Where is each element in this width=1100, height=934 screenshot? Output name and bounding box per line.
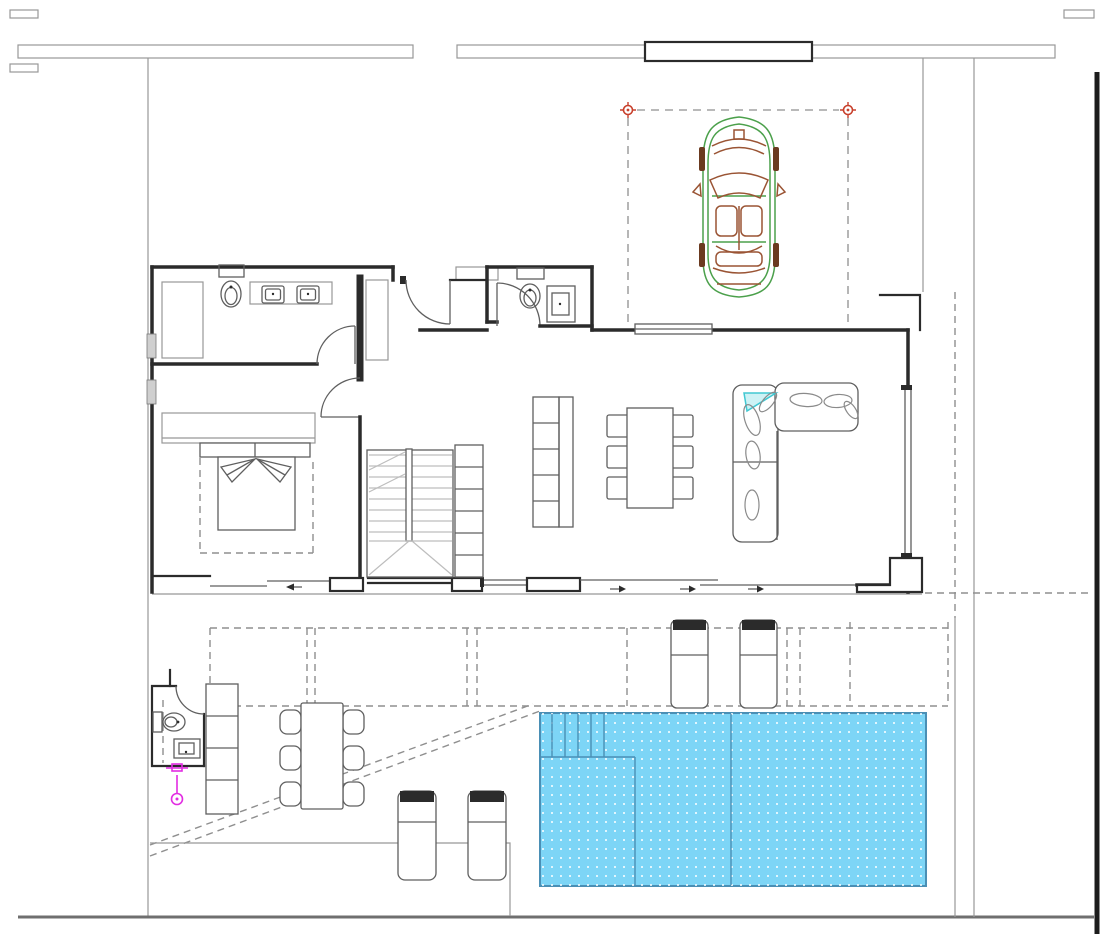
wall-ne-spur (880, 295, 920, 330)
survey-marker-icon (620, 102, 636, 118)
entry-porch-slab (456, 267, 498, 280)
sun-lounger (671, 620, 708, 708)
shelf-dividers (455, 467, 483, 555)
wall-pier-a (330, 578, 363, 591)
sofa-arm-horizontal (775, 383, 858, 431)
terrace-slab (150, 843, 510, 916)
survey-marker-icon (840, 102, 856, 118)
shower-enclosure (162, 282, 203, 358)
entrance-gate (645, 42, 812, 61)
bedroom-door-swing (321, 378, 360, 417)
dining-chair (607, 477, 629, 499)
lounger-headrest (673, 620, 706, 630)
dining-chair (671, 477, 693, 499)
shelf-dividers (533, 423, 559, 501)
window-west-2 (147, 380, 156, 404)
outdoor-chair (343, 710, 364, 734)
slide-arrow-right-head (619, 586, 626, 593)
slide-arrow-right-head (689, 586, 696, 593)
outdoor-wc (152, 670, 238, 814)
outdoor-table (301, 703, 343, 809)
outdoor-shower-icon (166, 764, 188, 805)
staircase (367, 449, 453, 577)
floor-plan-canvas (0, 0, 1100, 934)
pool-texture (540, 713, 926, 886)
terrace-edge (150, 843, 510, 916)
bathroom (162, 265, 332, 358)
sun-lounger (740, 620, 777, 708)
toilet-bowl (520, 284, 540, 308)
wall-pier-c (527, 578, 580, 591)
slide-arrow-right-head (757, 586, 764, 593)
outdoor-chair (343, 782, 364, 806)
dining-table (627, 408, 673, 508)
toilet-flush (177, 721, 180, 724)
sink-drain (185, 751, 187, 753)
window-cap (901, 385, 912, 390)
outdoor-wc-door-swing (176, 686, 204, 714)
wall-pier-b (452, 578, 482, 591)
sink-drain (559, 303, 561, 305)
swimming-pool (540, 713, 926, 886)
wall-pier-corner (857, 558, 922, 592)
boundary-stub-right-top (1064, 10, 1094, 18)
toilet-tank (517, 268, 544, 279)
dining-set (607, 408, 693, 508)
bed (218, 457, 295, 530)
guest-wc (517, 268, 575, 322)
dining-chair (607, 415, 629, 437)
toilet-flush (529, 289, 532, 292)
outdoor-chair (280, 746, 301, 770)
outdoor-chair (343, 746, 364, 770)
toilet-tank (153, 712, 162, 732)
storage-columns (455, 397, 573, 577)
sink-drain (307, 293, 309, 295)
boundary-stub-left-top (10, 10, 38, 18)
shelf-side-panel (559, 397, 573, 527)
window-west-1 (147, 334, 156, 358)
sink-drain (272, 293, 274, 295)
dining-chair (607, 446, 629, 468)
car-interior-lines (693, 130, 785, 284)
outdoor-chair (280, 782, 301, 806)
bathroom-door-swing (317, 326, 355, 364)
sink-basin (174, 739, 200, 758)
car-top-view (693, 117, 785, 297)
toilet-bowl-inner (165, 717, 177, 727)
toilet-flush (230, 286, 233, 289)
front-door-swing (406, 280, 450, 324)
lounger-headrest (400, 791, 434, 802)
outdoor-dining-set (280, 703, 364, 809)
stair-landing-lines (369, 541, 452, 575)
sun-loungers-terrace (398, 791, 506, 880)
floor-plan-page (0, 0, 1100, 934)
outdoor-chair (280, 710, 301, 734)
duct-shaft (366, 280, 388, 360)
shelf-column (533, 397, 559, 527)
stair-stringer (406, 449, 412, 541)
door-jamb (400, 276, 406, 284)
shelf-column (206, 684, 238, 814)
dining-chair (671, 415, 693, 437)
dining-chair (671, 446, 693, 468)
lounger-headrest (470, 791, 504, 802)
boundary-wall-north-west (18, 45, 413, 58)
boundary-stub-left (10, 64, 38, 72)
sun-loungers-poolside (671, 620, 777, 708)
bedroom (162, 413, 315, 553)
toilet-bowl (163, 713, 185, 731)
slide-arrow-left-head (286, 584, 294, 591)
window-cap (480, 577, 484, 587)
sun-lounger (398, 791, 436, 880)
lounger-headrest (742, 620, 775, 630)
toilet-bowl-inner (225, 288, 237, 305)
sofa (733, 383, 860, 542)
sun-lounger (468, 791, 506, 880)
toilet-bowl (221, 281, 241, 307)
parking-space (620, 102, 856, 328)
